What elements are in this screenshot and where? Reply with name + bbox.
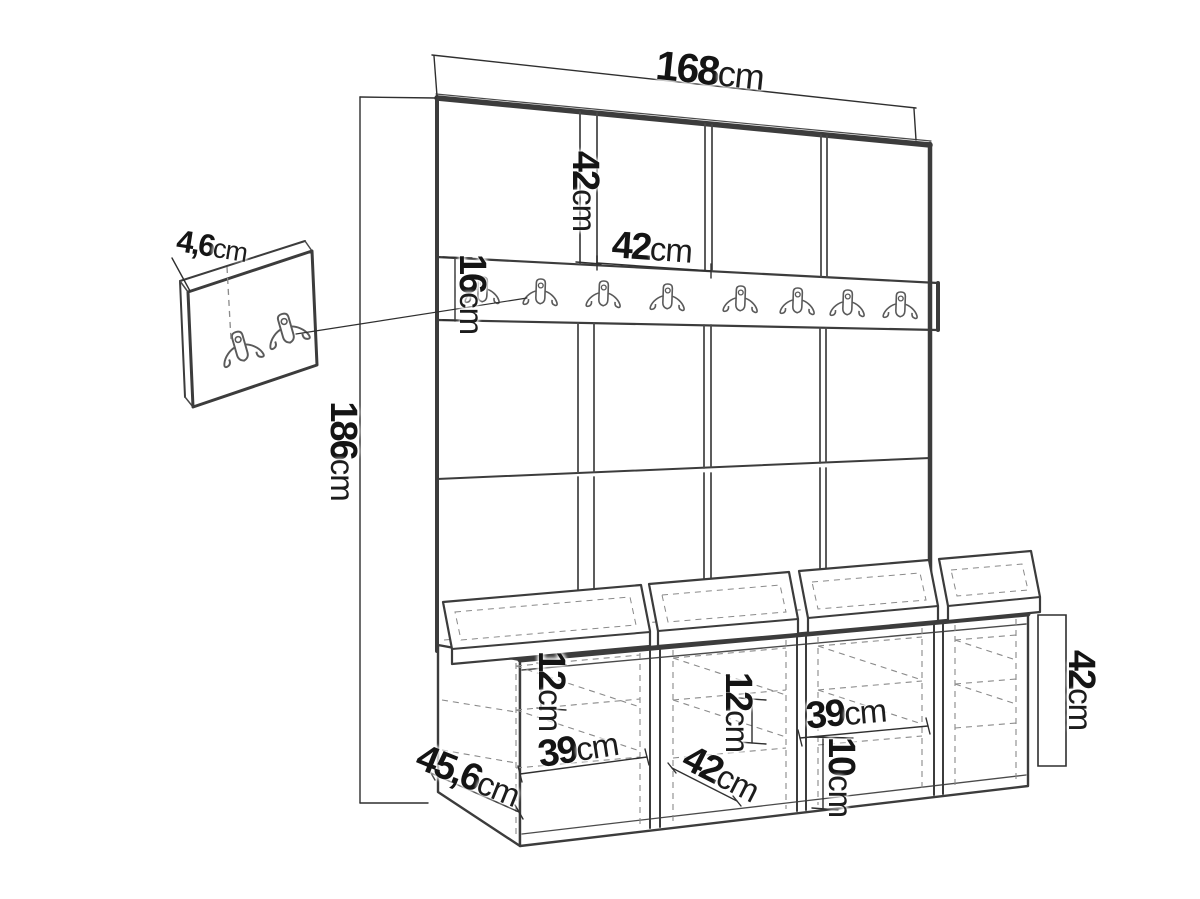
callout-line — [296, 298, 527, 334]
coat-hook-icon — [883, 291, 918, 318]
dim-bench-middle-shelf-spacing: 12cm — [719, 672, 757, 752]
hook-rail — [465, 276, 918, 318]
coat-hook-icon — [830, 289, 865, 316]
hook-panel-detail — [180, 241, 317, 407]
panel-grid-row2 — [578, 323, 826, 473]
coat-hook-icon — [723, 285, 758, 312]
dim-bench-left-shelf-spacing: 12cm — [532, 651, 570, 731]
cushion-3 — [799, 560, 938, 633]
dim-rail-height: 16cm — [453, 254, 491, 334]
dim-panel-width: 42cm — [611, 226, 694, 270]
dim-total-height: 186cm — [324, 401, 362, 500]
hook-panel-front — [188, 251, 317, 407]
dimension-diagram: 168cm 42cm 42cm 16cm 186cm 4,6cm 45,6cm … — [0, 0, 1200, 899]
coat-hook-icon — [650, 283, 685, 310]
coat-hook-icon — [780, 287, 815, 314]
dim-bench-height: 42cm — [1062, 650, 1100, 730]
dim-panel-height: 42cm — [566, 151, 604, 231]
coat-hook-icon — [523, 278, 558, 305]
cushion-4 — [939, 551, 1040, 621]
coat-hook-icon — [586, 280, 621, 307]
cushion-2 — [649, 572, 798, 646]
dim-bench-right-bottom-clearance: 10cm — [822, 737, 860, 817]
dim-bench-right-width: 39cm — [804, 691, 887, 736]
